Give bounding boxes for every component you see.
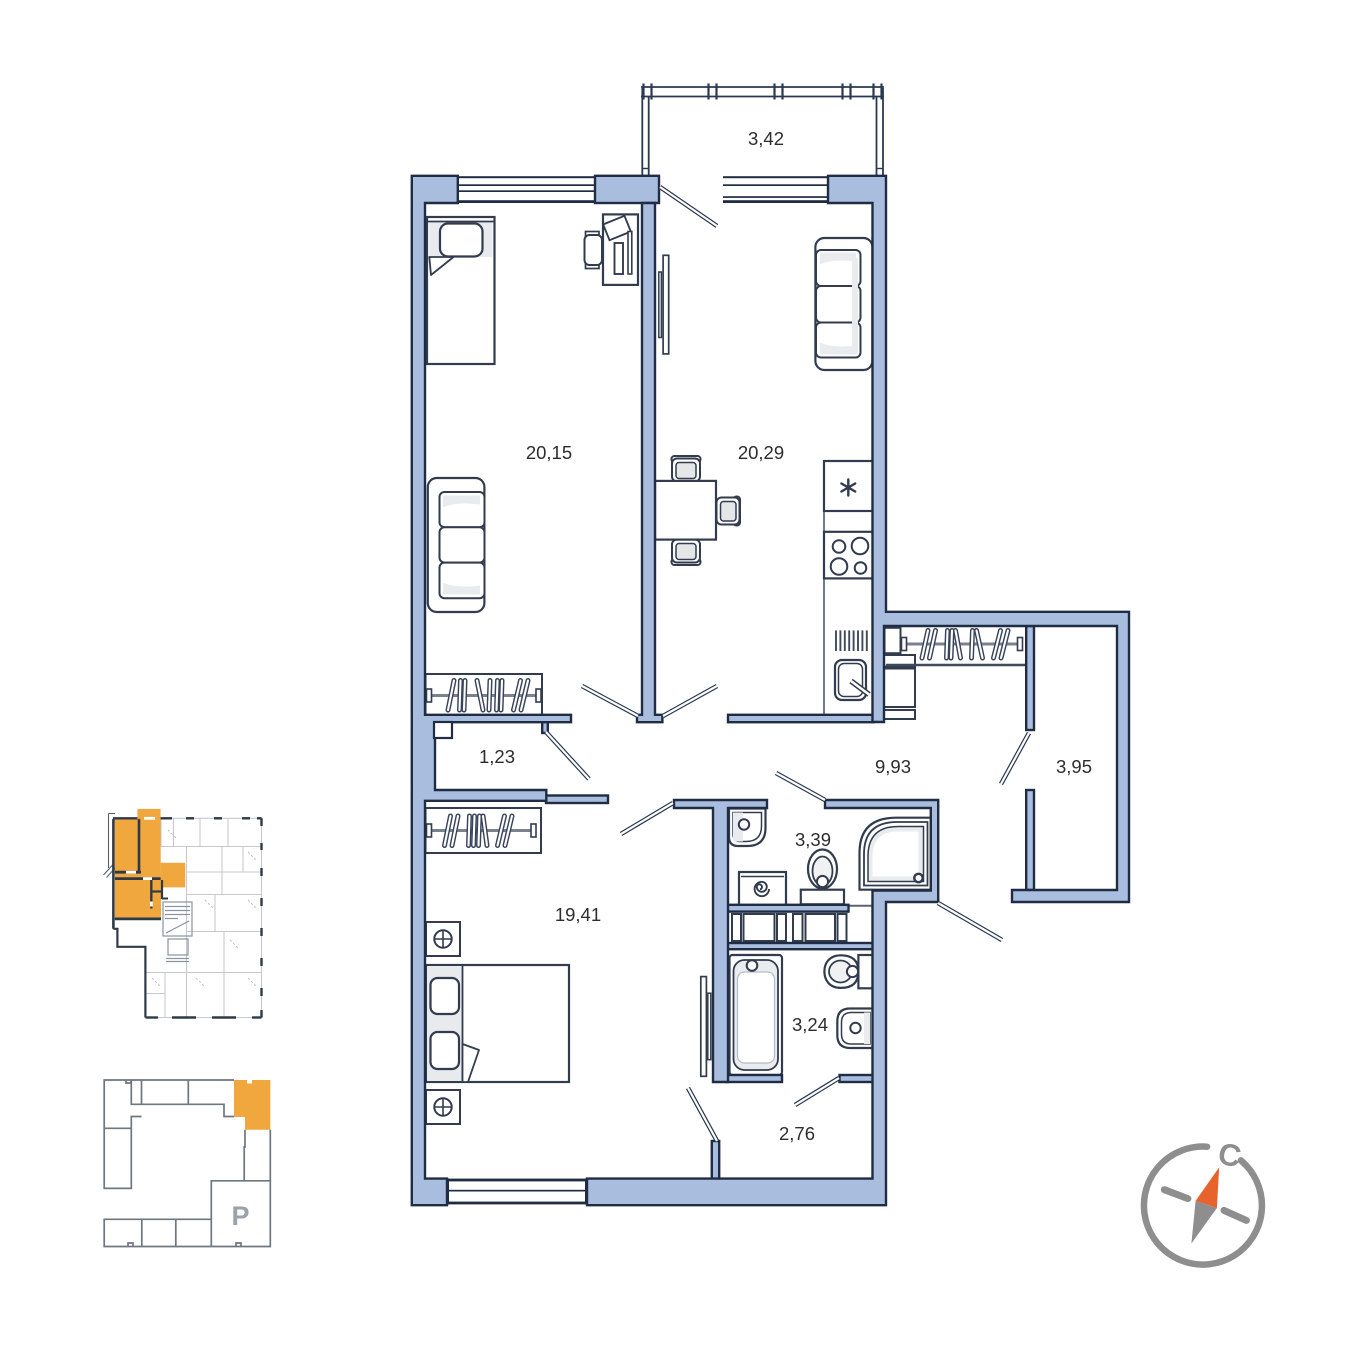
svg-text:19,41: 19,41 — [555, 904, 601, 925]
svg-text:3,39: 3,39 — [795, 829, 831, 850]
svg-text:20,15: 20,15 — [526, 442, 572, 463]
svg-text:2,76: 2,76 — [779, 1123, 815, 1144]
svg-text:P: P — [231, 1201, 249, 1231]
svg-text:3,42: 3,42 — [748, 128, 784, 149]
svg-text:9,93: 9,93 — [875, 756, 911, 777]
svg-text:20,29: 20,29 — [738, 442, 784, 463]
svg-text:1,23: 1,23 — [479, 746, 515, 767]
svg-text:3,95: 3,95 — [1056, 756, 1092, 777]
svg-text:3,24: 3,24 — [792, 1014, 828, 1035]
